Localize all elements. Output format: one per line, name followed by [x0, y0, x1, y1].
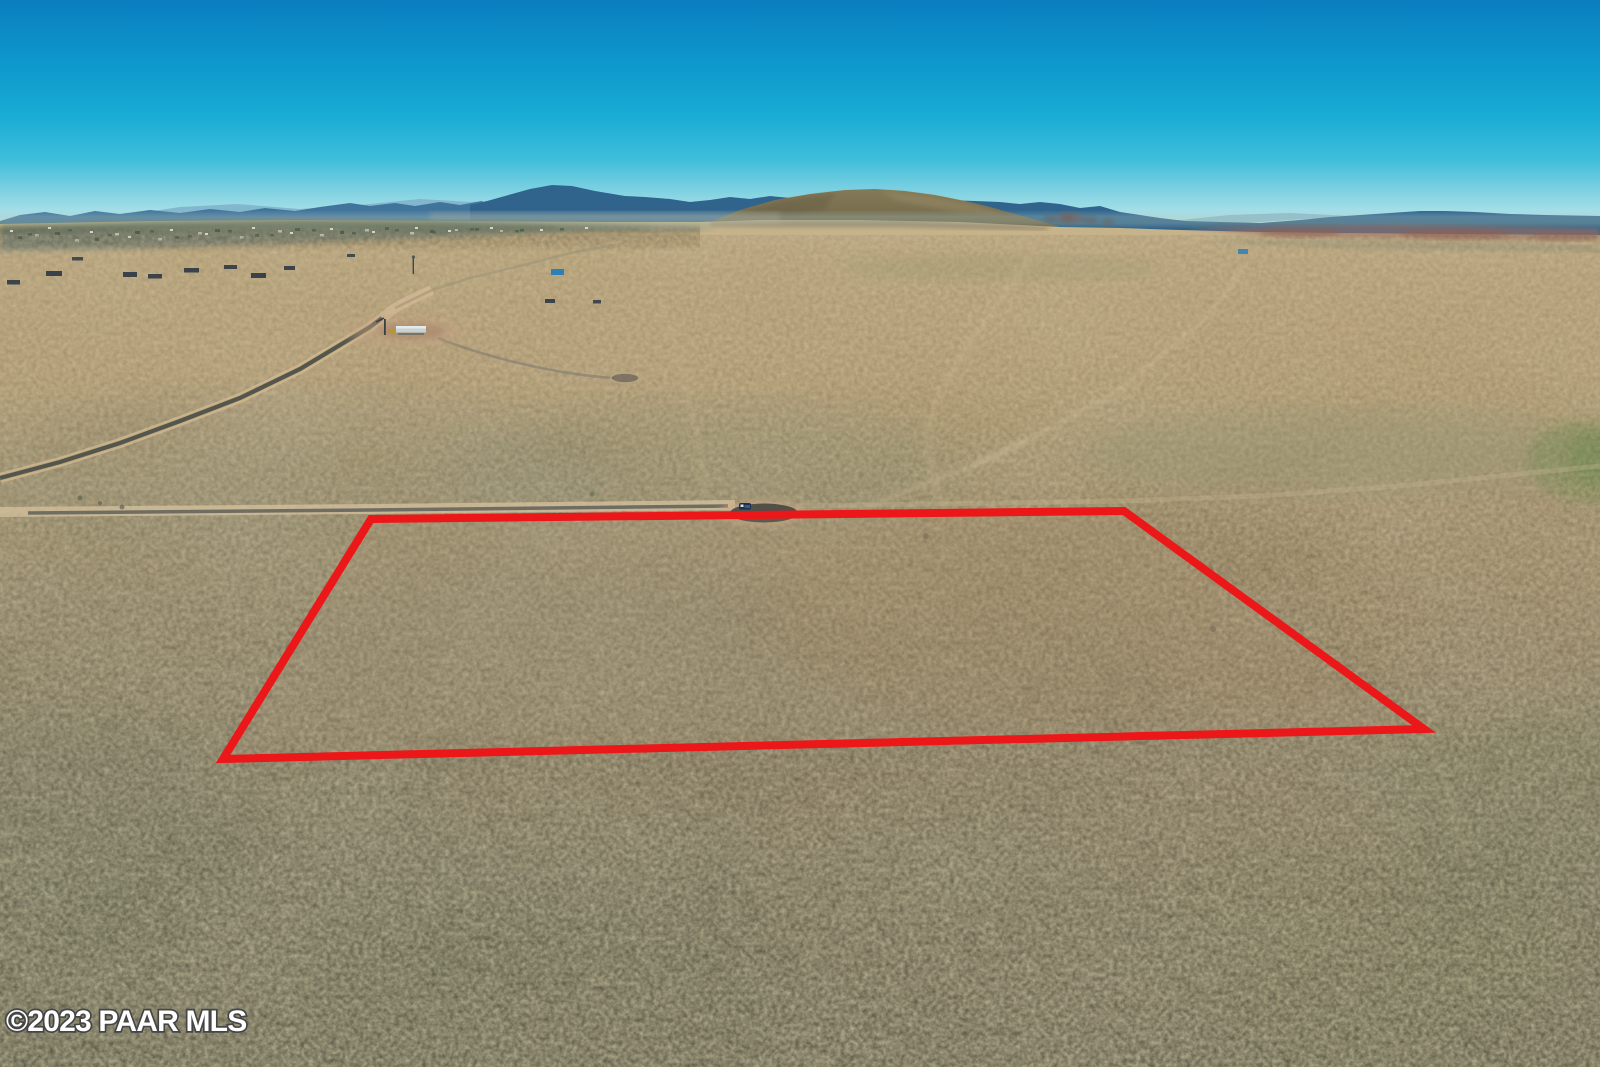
svg-text:©2023 PAAR MLS: ©2023 PAAR MLS	[6, 1005, 246, 1038]
